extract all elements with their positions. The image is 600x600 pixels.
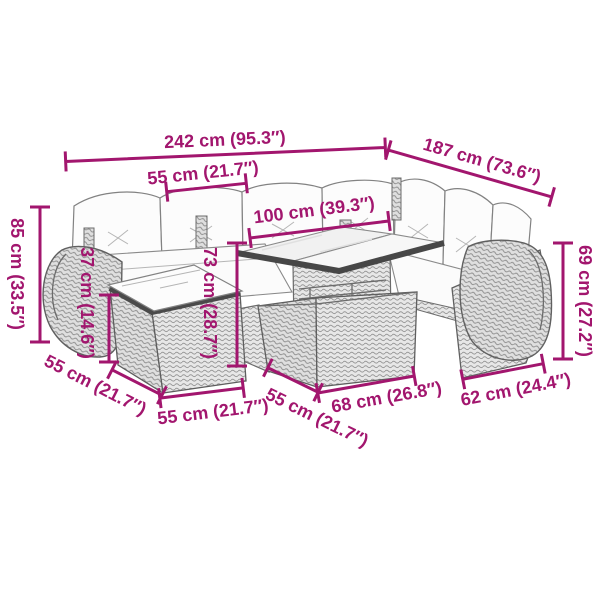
- dim-back-height-label: 85 cm (33.5″): [7, 218, 27, 330]
- dim-total-width-label: 242 cm (95.3″): [164, 127, 286, 152]
- dim-right-back-height: 69 cm (27.2″): [553, 243, 595, 359]
- dim-right-depth-label: 187 cm (73.6″): [421, 134, 544, 187]
- dim-right-back-height-label: 69 cm (27.2″): [575, 245, 595, 357]
- dim-back-height: 85 cm (33.5″): [7, 207, 50, 342]
- table-lower-box: [258, 292, 417, 387]
- dim-footstool-width-label: 55 cm (21.7″): [156, 395, 269, 428]
- dim-table-height-label: 73 cm (28.7″): [200, 247, 220, 359]
- footstool: [108, 265, 246, 393]
- dim-armrest-height-label: 37 cm (14.6″): [77, 247, 97, 359]
- right-armrest: [460, 240, 552, 360]
- dimension-diagram: 242 cm (95.3″) 187 cm (73.6″) 55 cm (21.…: [0, 0, 600, 600]
- furniture-drawing: 242 cm (95.3″) 187 cm (73.6″) 55 cm (21.…: [0, 0, 600, 600]
